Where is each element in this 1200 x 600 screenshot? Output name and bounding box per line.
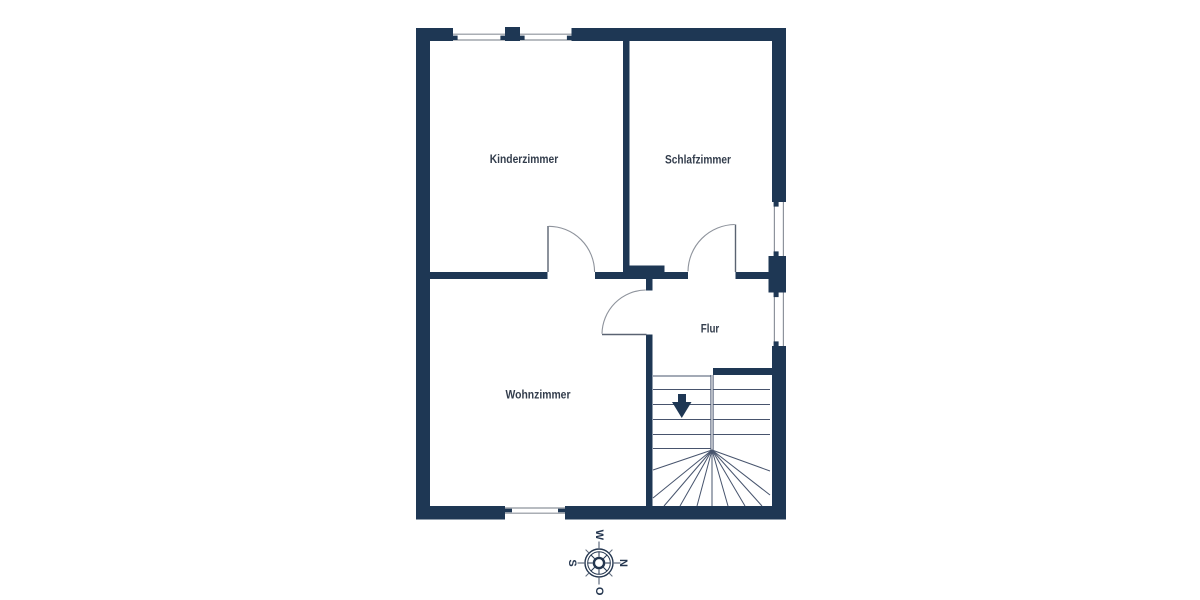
svg-text:N: N xyxy=(617,559,629,567)
svg-text:Schlafzimmer: Schlafzimmer xyxy=(665,153,731,167)
svg-text:W: W xyxy=(593,530,605,541)
svg-text:S: S xyxy=(566,559,578,566)
svg-text:O: O xyxy=(593,587,605,596)
svg-text:Flur: Flur xyxy=(701,322,720,336)
svg-text:Kinderzimmer: Kinderzimmer xyxy=(490,152,559,166)
svg-text:Wohnzimmer: Wohnzimmer xyxy=(506,388,571,402)
